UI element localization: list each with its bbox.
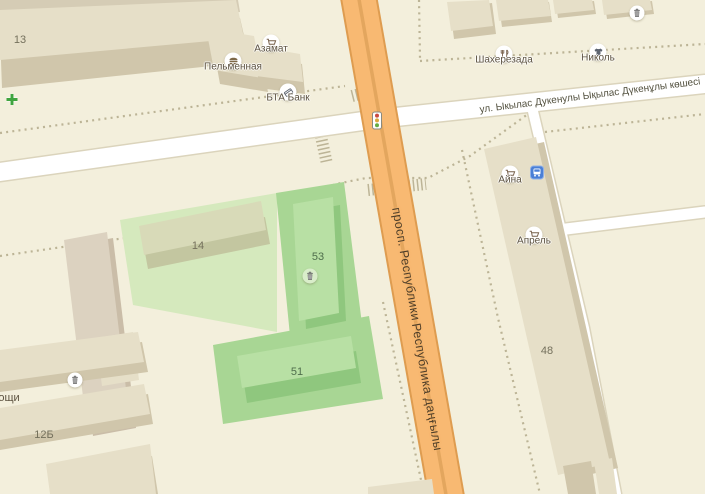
poi-label: Айна <box>498 175 521 186</box>
poi-label: Пельменная <box>204 62 262 73</box>
trash-icon-circle <box>303 269 318 284</box>
map-base-layer <box>0 0 705 494</box>
poi-label: БТА Банк <box>266 93 309 104</box>
trash-icon-circle <box>68 373 83 388</box>
building-number-label: 51 <box>291 366 303 378</box>
poi-label: Шахерезада <box>475 55 533 66</box>
building-number-label: ощи <box>0 392 20 404</box>
bus-stop-icon[interactable] <box>530 166 544 185</box>
poi-cart[interactable]: Апрель <box>526 227 543 244</box>
building-number-label: 53 <box>312 251 324 263</box>
poi-cart[interactable]: Айна <box>502 166 519 183</box>
poi-cart[interactable]: Азамат <box>263 35 280 52</box>
poi-label: Азамат <box>254 44 288 55</box>
building-number-label: 12Б <box>34 429 53 441</box>
poi-label: Апрель <box>517 236 551 247</box>
building-number-label: 48 <box>541 345 553 357</box>
poi-label: Николь <box>581 53 615 64</box>
trash-icon <box>68 373 83 388</box>
trash-icon-circle <box>630 6 645 21</box>
poi-clothes[interactable]: Николь <box>590 44 607 61</box>
building-53[interactable] <box>293 197 346 329</box>
building-number-label: 14 <box>192 240 204 252</box>
plus-icon <box>7 92 18 110</box>
building-roof <box>447 0 493 31</box>
trash-icon <box>303 269 318 284</box>
trash-icon <box>630 6 645 21</box>
poi-bank-card[interactable]: БТА Банк <box>280 84 297 101</box>
traffic-light-icon <box>372 111 383 135</box>
poi-burger[interactable]: Пельменная <box>225 53 242 70</box>
map-canvas[interactable]: ул. Ыкылас Дукенулы Ықылас Дүкенұлы көше… <box>0 0 705 494</box>
building-number-label: 13 <box>14 34 26 46</box>
building-48-annex <box>563 461 596 494</box>
poi-restaurant[interactable]: Шахерезада <box>496 46 513 63</box>
